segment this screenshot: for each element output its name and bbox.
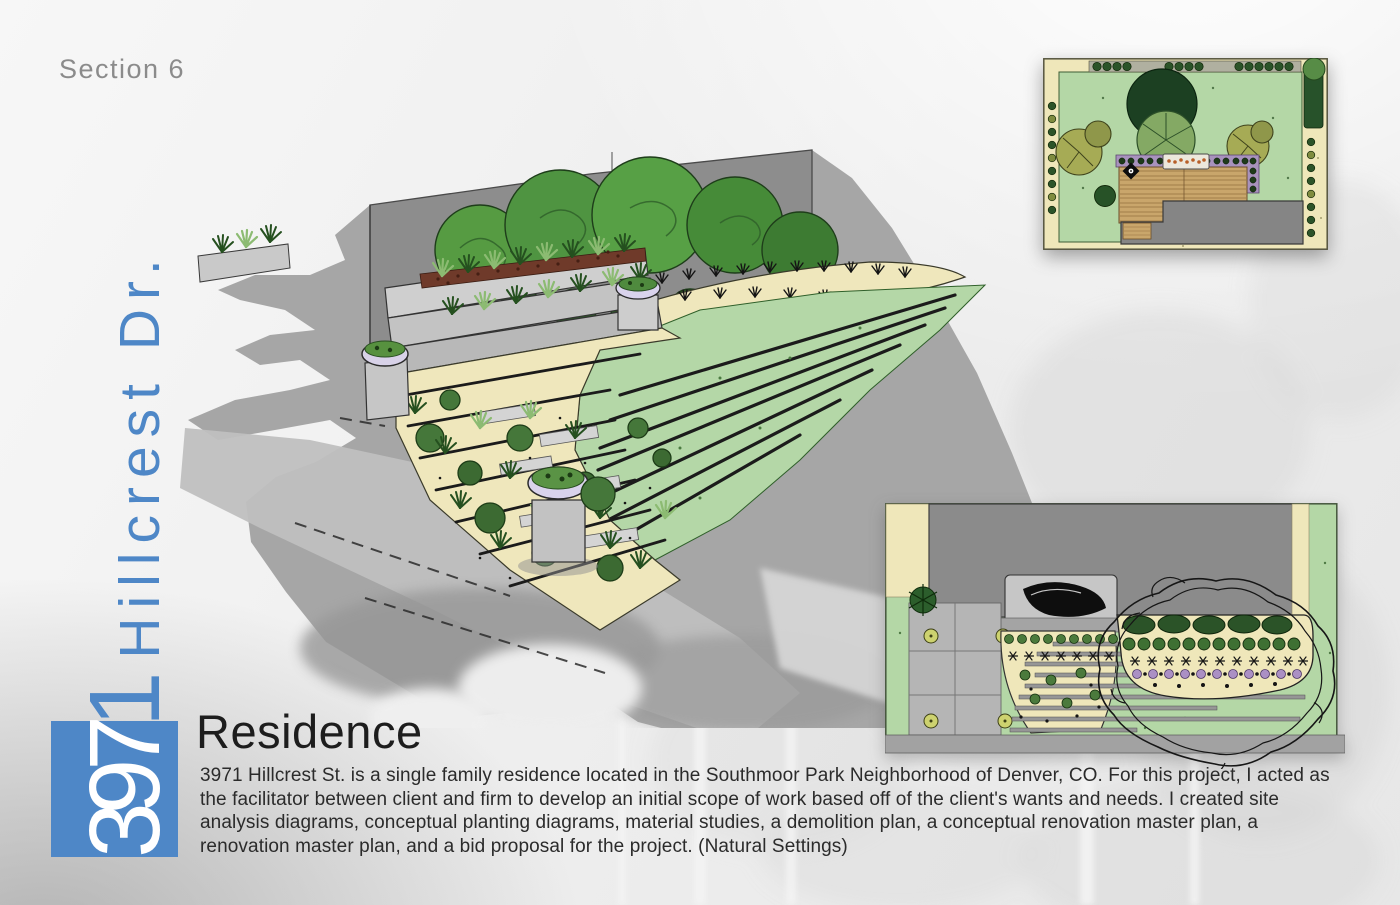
address-street: Hillcrest Dr. — [108, 250, 172, 683]
section-label: Section 6 — [59, 54, 185, 85]
bowl-planter-left — [362, 341, 409, 420]
address-number-above-box: 1 — [69, 684, 181, 728]
page-title: Residence — [196, 704, 423, 759]
bowl-planter-back — [616, 277, 660, 330]
vertical-address: 3971 Hillcrest Dr. — [75, 250, 175, 858]
portfolio-page: Section 6 3971 Hillcrest Dr. Residence 3… — [0, 0, 1400, 905]
project-description: 3971 Hillcrest St. is a single family re… — [200, 764, 1338, 858]
address-number-in-box: 397 — [69, 727, 181, 858]
backyard-plan-drawing — [1043, 58, 1328, 250]
frontyard-plan-drawing — [885, 503, 1345, 769]
